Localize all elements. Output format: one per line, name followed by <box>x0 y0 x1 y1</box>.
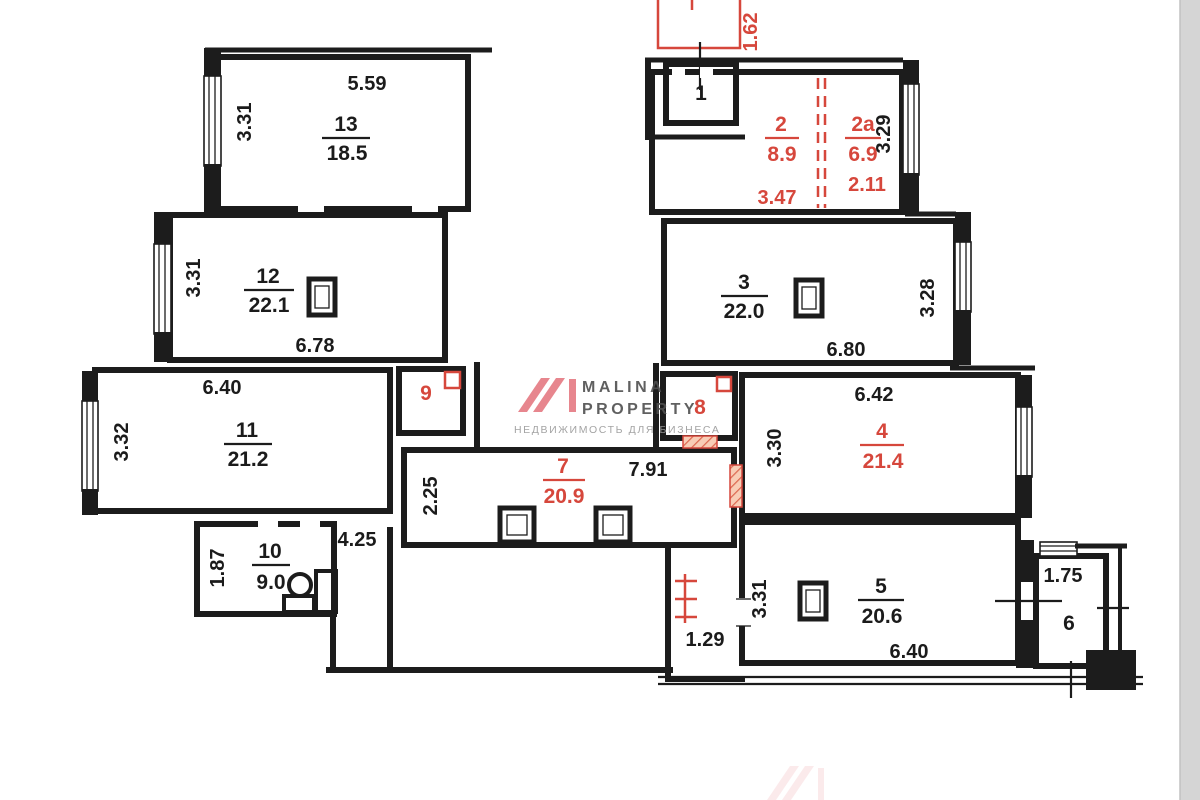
room-5-number: 5 <box>875 575 887 598</box>
red-hatch-wall <box>683 436 717 448</box>
column <box>796 280 822 316</box>
room-10: 10 9.0 1.87 4.25 <box>197 519 376 614</box>
room-2a-number: 2a <box>851 113 875 136</box>
page-edge <box>1180 0 1200 800</box>
room-3: 3 22.0 6.80 3.28 <box>664 212 971 365</box>
room-12-height-dim: 3.31 <box>183 259 205 298</box>
annex: 1.62 <box>658 0 762 51</box>
red-hatch-wall <box>730 465 742 507</box>
brand-logo <box>818 768 824 800</box>
room-12-width-dim: 6.78 <box>296 335 335 357</box>
column <box>802 287 816 309</box>
room-9: 9 <box>399 369 463 433</box>
floor-plan-svg: 3.31 5.59 13 18.5 3.31 12 22.1 6.78 6.40… <box>0 0 1200 800</box>
wall <box>1016 375 1032 409</box>
wall <box>1016 475 1032 518</box>
room-7-number: 7 <box>557 455 569 478</box>
annex-height-dim: 1.62 <box>740 13 762 52</box>
wall <box>154 212 171 246</box>
room-12-number: 12 <box>256 265 279 288</box>
room-11-area: 21.2 <box>228 448 269 471</box>
room-13: 3.31 5.59 13 18.5 <box>204 48 492 221</box>
wall <box>1016 620 1034 668</box>
room-3-area: 22.0 <box>724 300 765 323</box>
wall <box>903 60 919 85</box>
column <box>806 590 820 612</box>
window <box>82 401 98 491</box>
window <box>1040 542 1077 556</box>
room-7-area: 20.9 <box>544 485 585 508</box>
brand-name-top: MALINA <box>582 379 665 396</box>
window <box>1016 407 1032 477</box>
room-9-number: 9 <box>420 382 432 405</box>
room-4-height-dim: 3.30 <box>764 429 786 468</box>
wall <box>82 371 98 403</box>
wall <box>204 164 221 214</box>
room-11-height-dim: 3.32 <box>111 423 133 462</box>
toilet <box>284 596 314 612</box>
window <box>903 84 919 175</box>
room-10-area: 9.0 <box>256 571 285 594</box>
room-11: 6.40 11 21.2 3.32 <box>82 370 390 515</box>
scroll-gutter <box>1180 0 1200 800</box>
nook-width-dim: 1.29 <box>686 629 725 651</box>
room-3-number: 3 <box>738 271 750 294</box>
wall <box>1016 540 1034 582</box>
room-11-number: 11 <box>236 419 259 442</box>
wall <box>955 212 971 244</box>
brand-tagline: НЕДВИЖИМОСТЬ ДЛЯ БИЗНЕСА <box>514 424 720 436</box>
room-4-area: 21.4 <box>863 450 904 473</box>
room-5: 5 20.6 3.31 6.40 <box>736 522 1018 663</box>
room-1-number: 1 <box>695 82 707 105</box>
room-5-width-dim: 6.40 <box>890 641 929 663</box>
brand-logo <box>569 379 576 412</box>
window <box>955 242 971 312</box>
shaft <box>603 515 623 535</box>
wall <box>664 221 956 363</box>
wall <box>955 310 971 365</box>
room-4-width-dim: 6.42 <box>855 384 894 406</box>
room-2-area: 8.9 <box>767 143 796 166</box>
radiator <box>675 574 697 623</box>
window <box>154 244 171 334</box>
brand-name-bottom: PROPERTY <box>582 401 698 418</box>
watermark: MALINA PROPERTY НЕДВИЖИМОСТЬ ДЛЯ БИЗНЕСА <box>514 378 720 436</box>
door-opening <box>672 67 685 78</box>
room-4: 6.42 4 21.4 3.30 <box>730 368 1035 518</box>
door-opening <box>700 67 713 78</box>
room-3-height-dim: 3.28 <box>917 279 939 318</box>
room-4-number: 4 <box>876 420 888 443</box>
toilet <box>289 574 311 596</box>
room-2a-height-dim: 3.29 <box>873 115 895 154</box>
room-5-height-dim: 3.31 <box>749 580 771 619</box>
shaft <box>500 508 534 542</box>
room-7-height-dim: 2.25 <box>420 477 442 516</box>
annex-outline <box>658 0 740 48</box>
red-mark <box>717 377 731 391</box>
window <box>204 76 221 166</box>
room-6-width-dim: 1.75 <box>1044 565 1083 587</box>
column <box>800 583 826 619</box>
watermark-ghost <box>767 766 824 800</box>
column <box>315 286 329 308</box>
room-2-width-dim: 3.47 <box>758 187 797 209</box>
shaft <box>596 508 630 542</box>
room-7-width-dim: 7.91 <box>629 459 668 481</box>
wall <box>1086 650 1136 690</box>
room-10-number: 10 <box>258 540 281 563</box>
room-13-width-dim: 5.59 <box>348 73 387 95</box>
wall <box>204 48 221 78</box>
room-12-area: 22.1 <box>249 294 290 317</box>
floor-plan-image: 3.31 5.59 13 18.5 3.31 12 22.1 6.78 6.40… <box>0 0 1200 800</box>
room-2-number: 2 <box>775 113 787 136</box>
room-11-width-dim: 6.40 <box>203 377 242 399</box>
wall <box>154 332 171 362</box>
room-13-height-dim: 3.31 <box>234 103 256 142</box>
column <box>309 279 335 315</box>
door-opening <box>300 519 320 531</box>
wall <box>82 489 98 515</box>
hall-width-dim: 4.25 <box>338 529 377 551</box>
room-6-number: 6 <box>1063 612 1075 635</box>
room-13-area: 18.5 <box>327 142 368 165</box>
room-5-area: 20.6 <box>862 605 903 628</box>
room-13-number: 13 <box>334 113 357 136</box>
wall <box>903 173 919 214</box>
red-mark <box>445 372 460 388</box>
room-3-width-dim: 6.80 <box>827 339 866 361</box>
room-10-height-dim: 1.87 <box>207 549 229 588</box>
room-12: 3.31 12 22.1 6.78 <box>154 212 445 362</box>
door-opening <box>736 598 750 626</box>
room-2a-width-dim: 2.11 <box>848 174 886 196</box>
lower-hall: 1.29 <box>326 527 745 682</box>
shaft <box>507 515 527 535</box>
door-opening <box>258 519 278 531</box>
